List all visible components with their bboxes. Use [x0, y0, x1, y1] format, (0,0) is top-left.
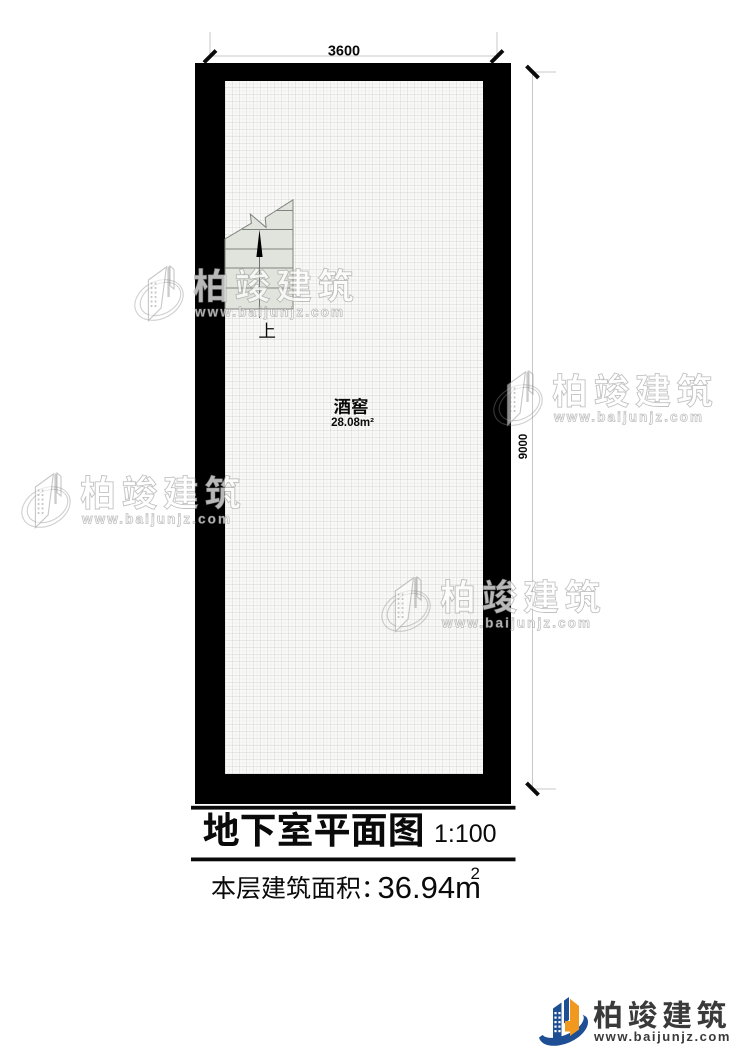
svg-text:www.baijunjz.com: www.baijunjz.com [593, 1029, 731, 1044]
svg-text:1:100: 1:100 [434, 820, 497, 848]
svg-text:28.08m²: 28.08m² [331, 417, 374, 429]
svg-text:3600: 3600 [328, 44, 360, 60]
svg-text:2: 2 [471, 864, 480, 883]
svg-text:9000: 9000 [518, 434, 530, 460]
svg-text:36.94m: 36.94m [378, 870, 481, 905]
